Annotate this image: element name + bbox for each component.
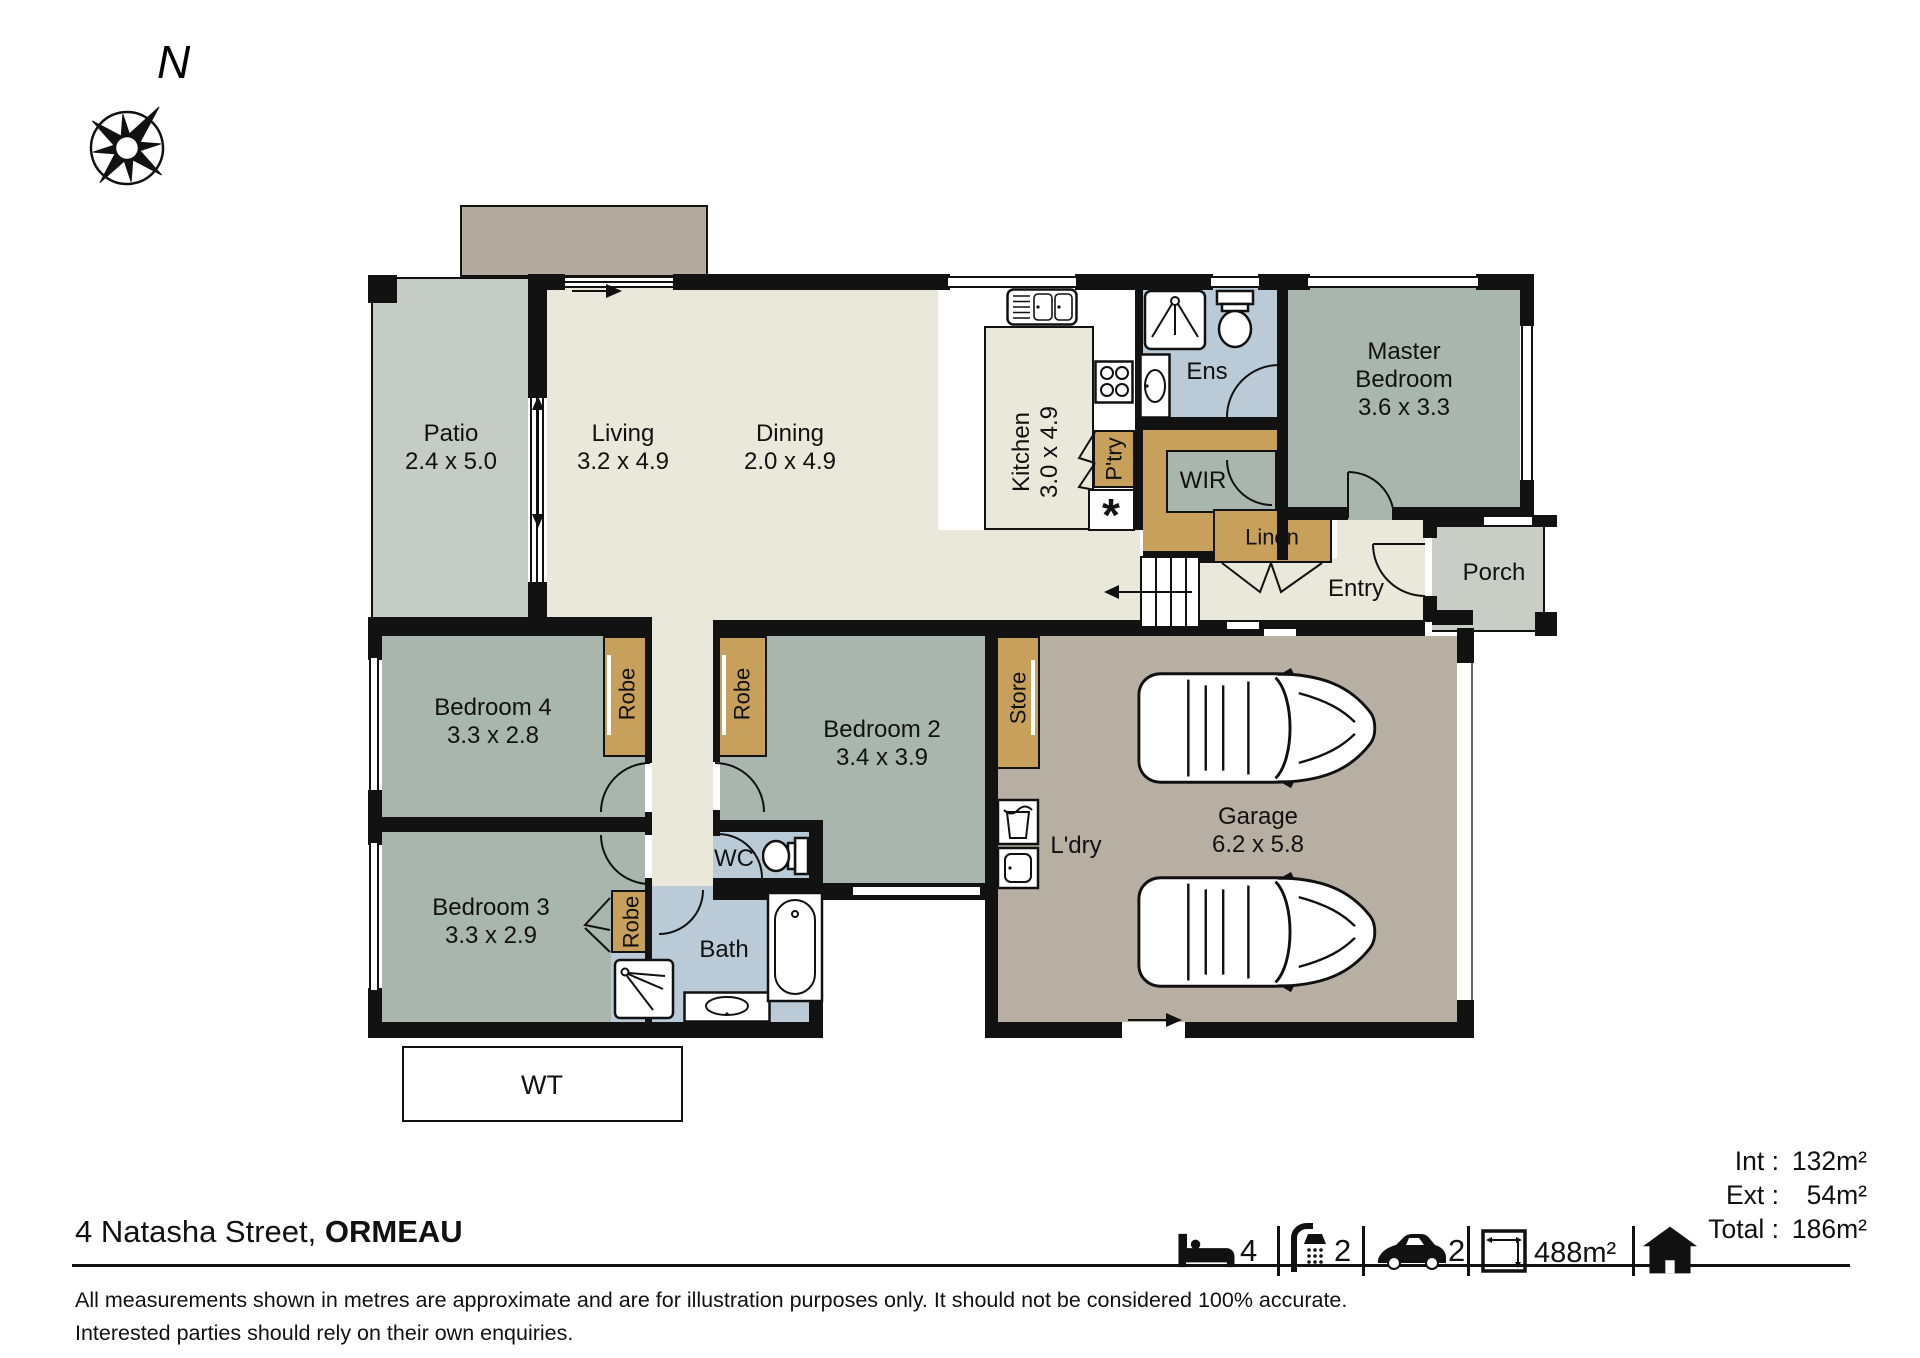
suburb: ORMEAU	[325, 1214, 463, 1249]
house-icon	[1642, 1224, 1698, 1276]
shower-icon	[1288, 1222, 1328, 1276]
label-entry: Entry	[1328, 575, 1384, 603]
label-robe-bed2: Robe	[730, 668, 755, 721]
land-size-icon	[1480, 1228, 1528, 1274]
label-porch: Porch	[1463, 559, 1526, 587]
label-bed2: Bedroom 23.4 x 3.9	[823, 716, 940, 772]
disclaimer: All measurements shown in metres are app…	[75, 1284, 1347, 1350]
label-robe-bed3: Robe	[619, 896, 644, 949]
legend-land: 488m²	[1534, 1228, 1616, 1278]
label-ens: Ens	[1186, 358, 1227, 386]
car-legend-icon	[1372, 1230, 1448, 1274]
legend-beds: 4	[1240, 1226, 1257, 1276]
label-dining: Dining2.0 x 4.9	[744, 420, 836, 476]
legend-cars: 2	[1448, 1226, 1465, 1276]
address: 4 Natasha Street, ORMEAU	[75, 1214, 463, 1250]
label-bath: Bath	[699, 936, 748, 964]
label-bed4: Bedroom 43.3 x 2.8	[434, 694, 551, 750]
legend-baths: 2	[1334, 1226, 1351, 1276]
label-pantry: P'try	[1102, 437, 1127, 480]
label-wir: WIR	[1180, 467, 1227, 495]
label-patio: Patio2.4 x 5.0	[405, 420, 497, 476]
floor-plan-page: N	[0, 0, 1920, 1358]
bed-icon	[1175, 1232, 1237, 1270]
label-linen: Linen	[1245, 525, 1299, 550]
label-note-symbol: *	[1102, 501, 1120, 529]
label-garage: Garage6.2 x 5.8	[1212, 803, 1304, 859]
label-living: Living3.2 x 4.9	[577, 420, 669, 476]
label-store: Store	[1006, 672, 1031, 725]
label-robe-bed4: Robe	[615, 668, 640, 721]
doors-layer	[0, 0, 1920, 1358]
label-water-tank: WT	[521, 1071, 563, 1099]
label-bed3: Bedroom 33.3 x 2.9	[432, 894, 549, 950]
area-summary: Int :132m² Ext :54m² Total :186m²	[1708, 1144, 1867, 1246]
label-wc: WC	[714, 845, 754, 873]
label-master: MasterBedroom3.6 x 3.3	[1355, 338, 1452, 422]
label-kitchen: Kitchen3.0 x 4.9	[1008, 406, 1064, 498]
label-laundry: L'dry	[1050, 832, 1101, 860]
